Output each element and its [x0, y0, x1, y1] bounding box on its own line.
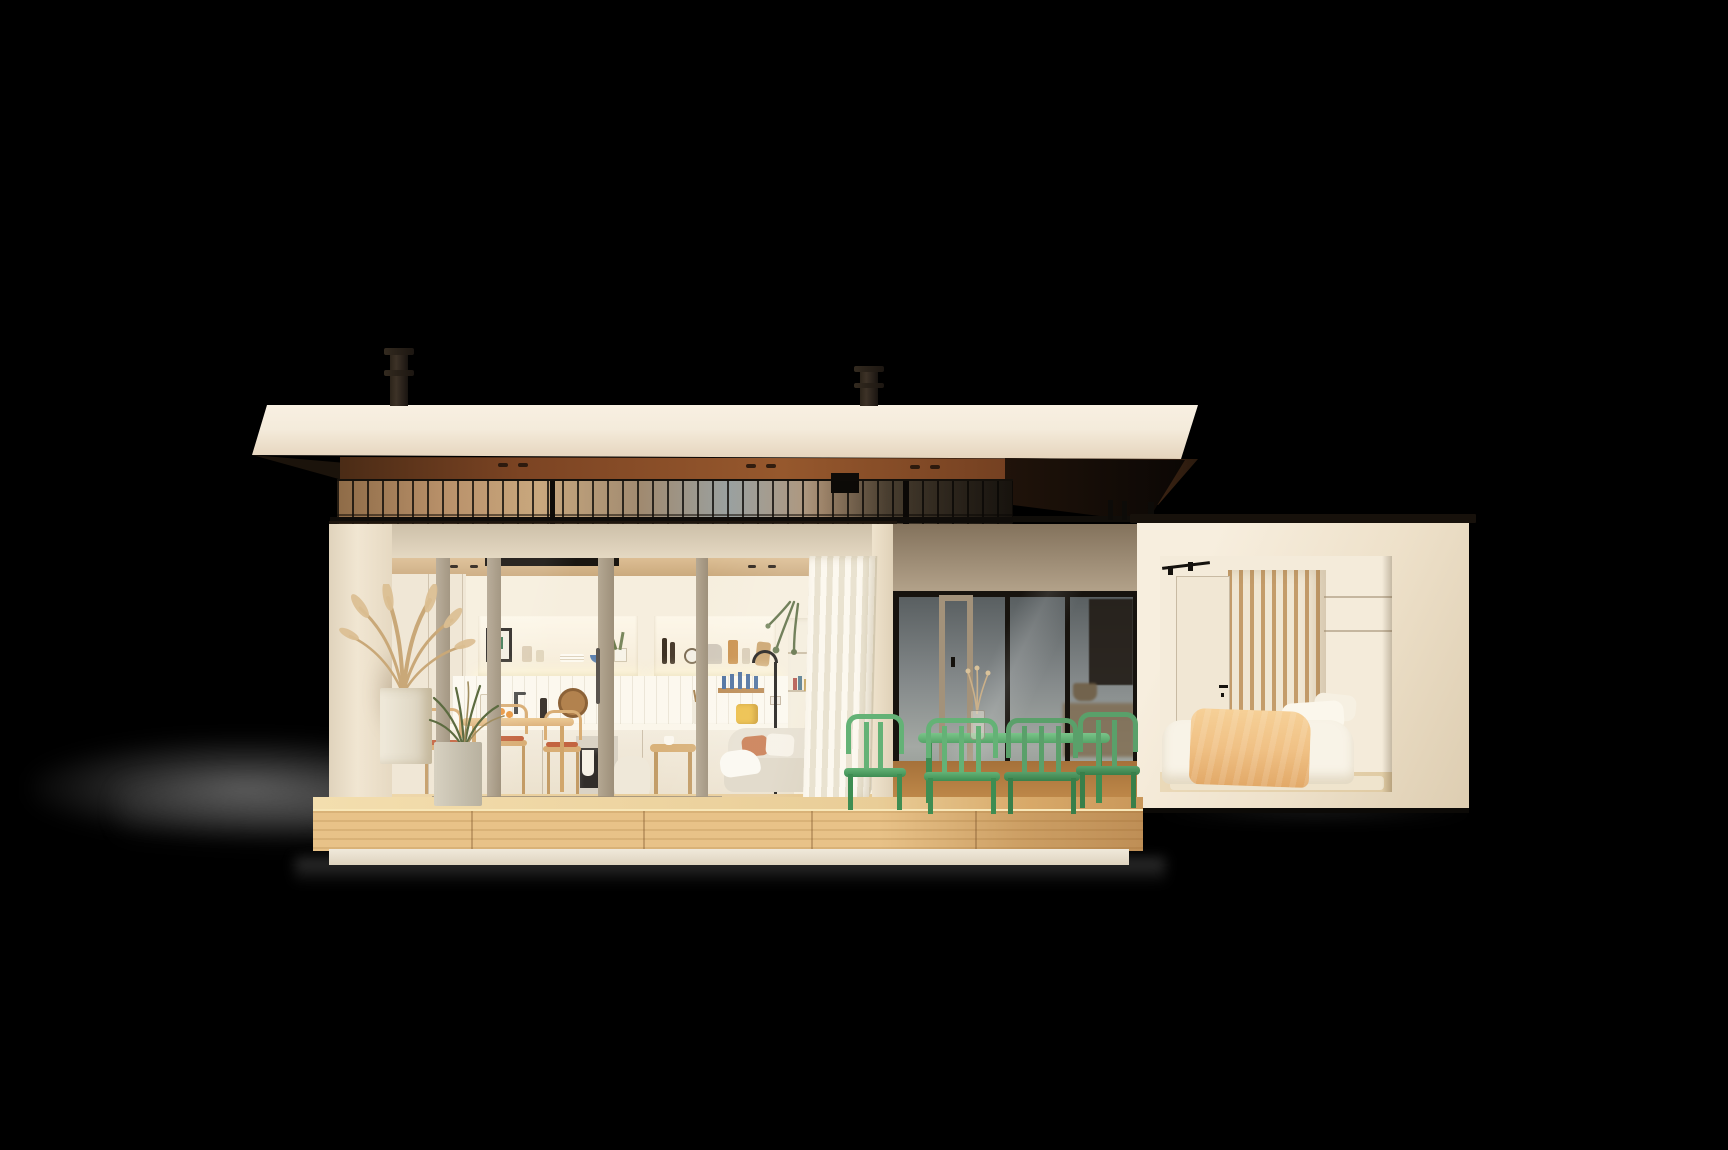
chair-slat [942, 726, 947, 772]
door-handle [1219, 685, 1228, 688]
chair-slat [1112, 720, 1117, 766]
ceiling-spotlight [748, 565, 756, 568]
side-table-top [650, 744, 696, 752]
small-gray-planter [434, 742, 482, 806]
bedroom-opening [1160, 556, 1392, 792]
bedroom-base-line [1137, 808, 1469, 813]
track-light-head [1168, 566, 1173, 575]
book [793, 678, 797, 690]
knife [754, 676, 758, 689]
chimney-flue-left [384, 348, 414, 406]
artwork-behind-glass [1089, 599, 1133, 685]
kitchen-shelf-niche-right [654, 616, 776, 676]
soffit-light [498, 463, 508, 467]
oil-bottle [662, 638, 667, 664]
glass-door-stile [598, 558, 614, 808]
oil-bottle [670, 642, 675, 664]
chair-slat [1056, 726, 1061, 772]
knife [738, 672, 742, 689]
knife [746, 674, 750, 689]
soffit-light [910, 465, 920, 469]
ceiling-spotlight [450, 565, 458, 568]
chimney-cap [854, 366, 884, 372]
faucet-spout [514, 692, 526, 695]
white-cushion [765, 733, 794, 757]
green-chair [846, 714, 904, 812]
chair-leg [848, 774, 853, 810]
chair-leg [991, 778, 996, 814]
chair-seat [924, 772, 1000, 781]
lamp-behind-glass [1073, 683, 1097, 701]
steel-post [1108, 500, 1113, 520]
kitchen-shelf-niche-left [478, 616, 638, 676]
chair-seat [1004, 772, 1080, 781]
chair-leg [1071, 778, 1076, 814]
terrace-upper-band [893, 524, 1140, 592]
patio-door-rail [939, 595, 973, 601]
foundation-strip [329, 849, 1129, 865]
yellow-toaster [736, 704, 758, 724]
green-chair [1006, 718, 1078, 814]
chimney-cap [384, 348, 414, 355]
glass-door-stile [696, 558, 708, 808]
soffit-light [746, 464, 756, 468]
chair-slat [976, 726, 981, 772]
chair-leg [522, 746, 525, 798]
chair-leg [1008, 778, 1013, 814]
chair-slat [878, 722, 883, 768]
chimney-collar [854, 383, 884, 388]
oven-towel [582, 750, 594, 776]
ceiling-spotlight [768, 565, 776, 568]
book [798, 676, 802, 690]
deck-fascia [313, 809, 1143, 851]
soffit-light [930, 465, 940, 469]
knife [730, 674, 734, 689]
dried-sprigs [960, 664, 994, 714]
chair-leg [1080, 772, 1085, 808]
plank-joint [975, 811, 977, 851]
bed [1160, 706, 1392, 792]
chair-slat [1039, 726, 1044, 772]
table-leg [560, 726, 564, 792]
plank-joint [811, 811, 813, 851]
stacked-plates [560, 654, 584, 662]
chair-slat [1096, 720, 1101, 766]
green-chair [926, 718, 998, 814]
roof-fascia [250, 405, 1200, 459]
chair-slat [1022, 726, 1027, 772]
cup [664, 736, 674, 745]
ceiling-spotlight [470, 565, 478, 568]
plank-joint [643, 811, 645, 851]
peach-throw-blanket [1189, 708, 1312, 788]
green-grass-tuft [418, 676, 510, 750]
chair-slat [864, 722, 869, 768]
glass-frame-top [893, 591, 1140, 597]
patio-door-handle [951, 657, 955, 667]
render-stage: Cutaway-style render of a flat-roof modu… [0, 0, 1728, 1150]
glassware [522, 646, 532, 662]
chair-leg [1131, 772, 1136, 808]
cabinet-seam [542, 730, 543, 804]
soffit-light [766, 464, 776, 468]
pitcher [706, 644, 722, 664]
glassware [536, 650, 544, 662]
knife-strip [718, 676, 764, 706]
door-keyhole [1221, 693, 1224, 697]
chair-leg [928, 778, 933, 814]
trailing-plant [764, 598, 810, 658]
chair-slat [959, 726, 964, 772]
chimney-pipe [390, 348, 408, 406]
chair-leg [897, 774, 902, 810]
bedroom-roof-edge [1130, 514, 1476, 523]
chimney-collar [384, 370, 414, 376]
knife [722, 676, 726, 689]
opening-jamb-shade [1382, 556, 1392, 792]
green-chair [1078, 712, 1138, 810]
track-light-head [1188, 562, 1193, 571]
steel-post [1122, 501, 1127, 520]
chair-back [846, 714, 904, 754]
bedroom-module [1130, 514, 1476, 814]
plank-joint [471, 811, 473, 851]
terrace-canopy-underside [1005, 458, 1201, 522]
storage-jar [742, 648, 750, 664]
chair-back [1078, 712, 1138, 752]
wall-upper-band [329, 524, 897, 560]
amber-jar [728, 640, 738, 664]
door-handle [596, 648, 600, 704]
soffit-light [518, 463, 528, 467]
chimney-flue-right [854, 366, 884, 406]
